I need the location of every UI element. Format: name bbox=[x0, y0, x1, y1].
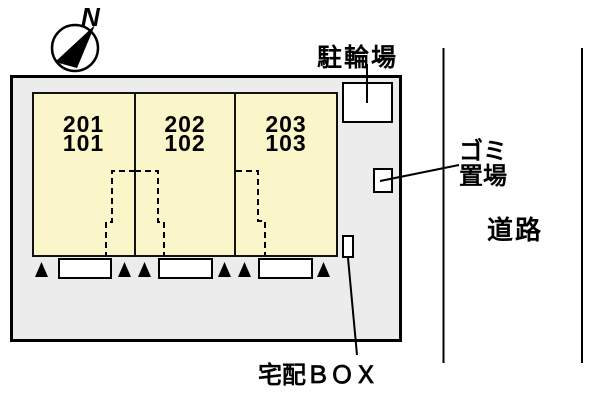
road-label: 道路 bbox=[487, 210, 543, 247]
unit-lower-number: 103 bbox=[235, 134, 337, 153]
entrance-step-1 bbox=[58, 258, 112, 279]
unit-label-201-101: 201 101 bbox=[32, 115, 135, 153]
bicycle-parking-box bbox=[342, 82, 393, 123]
garbage-area-label-line2: 置場 bbox=[459, 164, 507, 189]
bicycle-parking-label: 駐輪場 bbox=[317, 38, 398, 74]
unit-label-202-102: 202 102 bbox=[135, 115, 235, 153]
delivery-box-label: 宅配ＢＯＸ bbox=[258, 355, 378, 390]
entrance-step-2 bbox=[158, 258, 213, 279]
unit-lower-number: 102 bbox=[135, 134, 235, 153]
entrance-step-3 bbox=[258, 258, 313, 279]
garbage-area-label: ゴミ 置場 bbox=[459, 139, 507, 189]
unit-lower-number: 101 bbox=[32, 134, 135, 153]
compass-north-label: N bbox=[81, 2, 100, 33]
delivery-box-box bbox=[342, 235, 354, 258]
garbage-area-box bbox=[373, 168, 393, 193]
unit-label-203-103: 203 103 bbox=[235, 115, 337, 153]
garbage-area-label-line1: ゴミ bbox=[459, 139, 507, 164]
site-plan-canvas: 201 101 202 102 203 103 駐輪場 ゴミ 置場 道路 宅配Ｂ… bbox=[0, 0, 600, 400]
